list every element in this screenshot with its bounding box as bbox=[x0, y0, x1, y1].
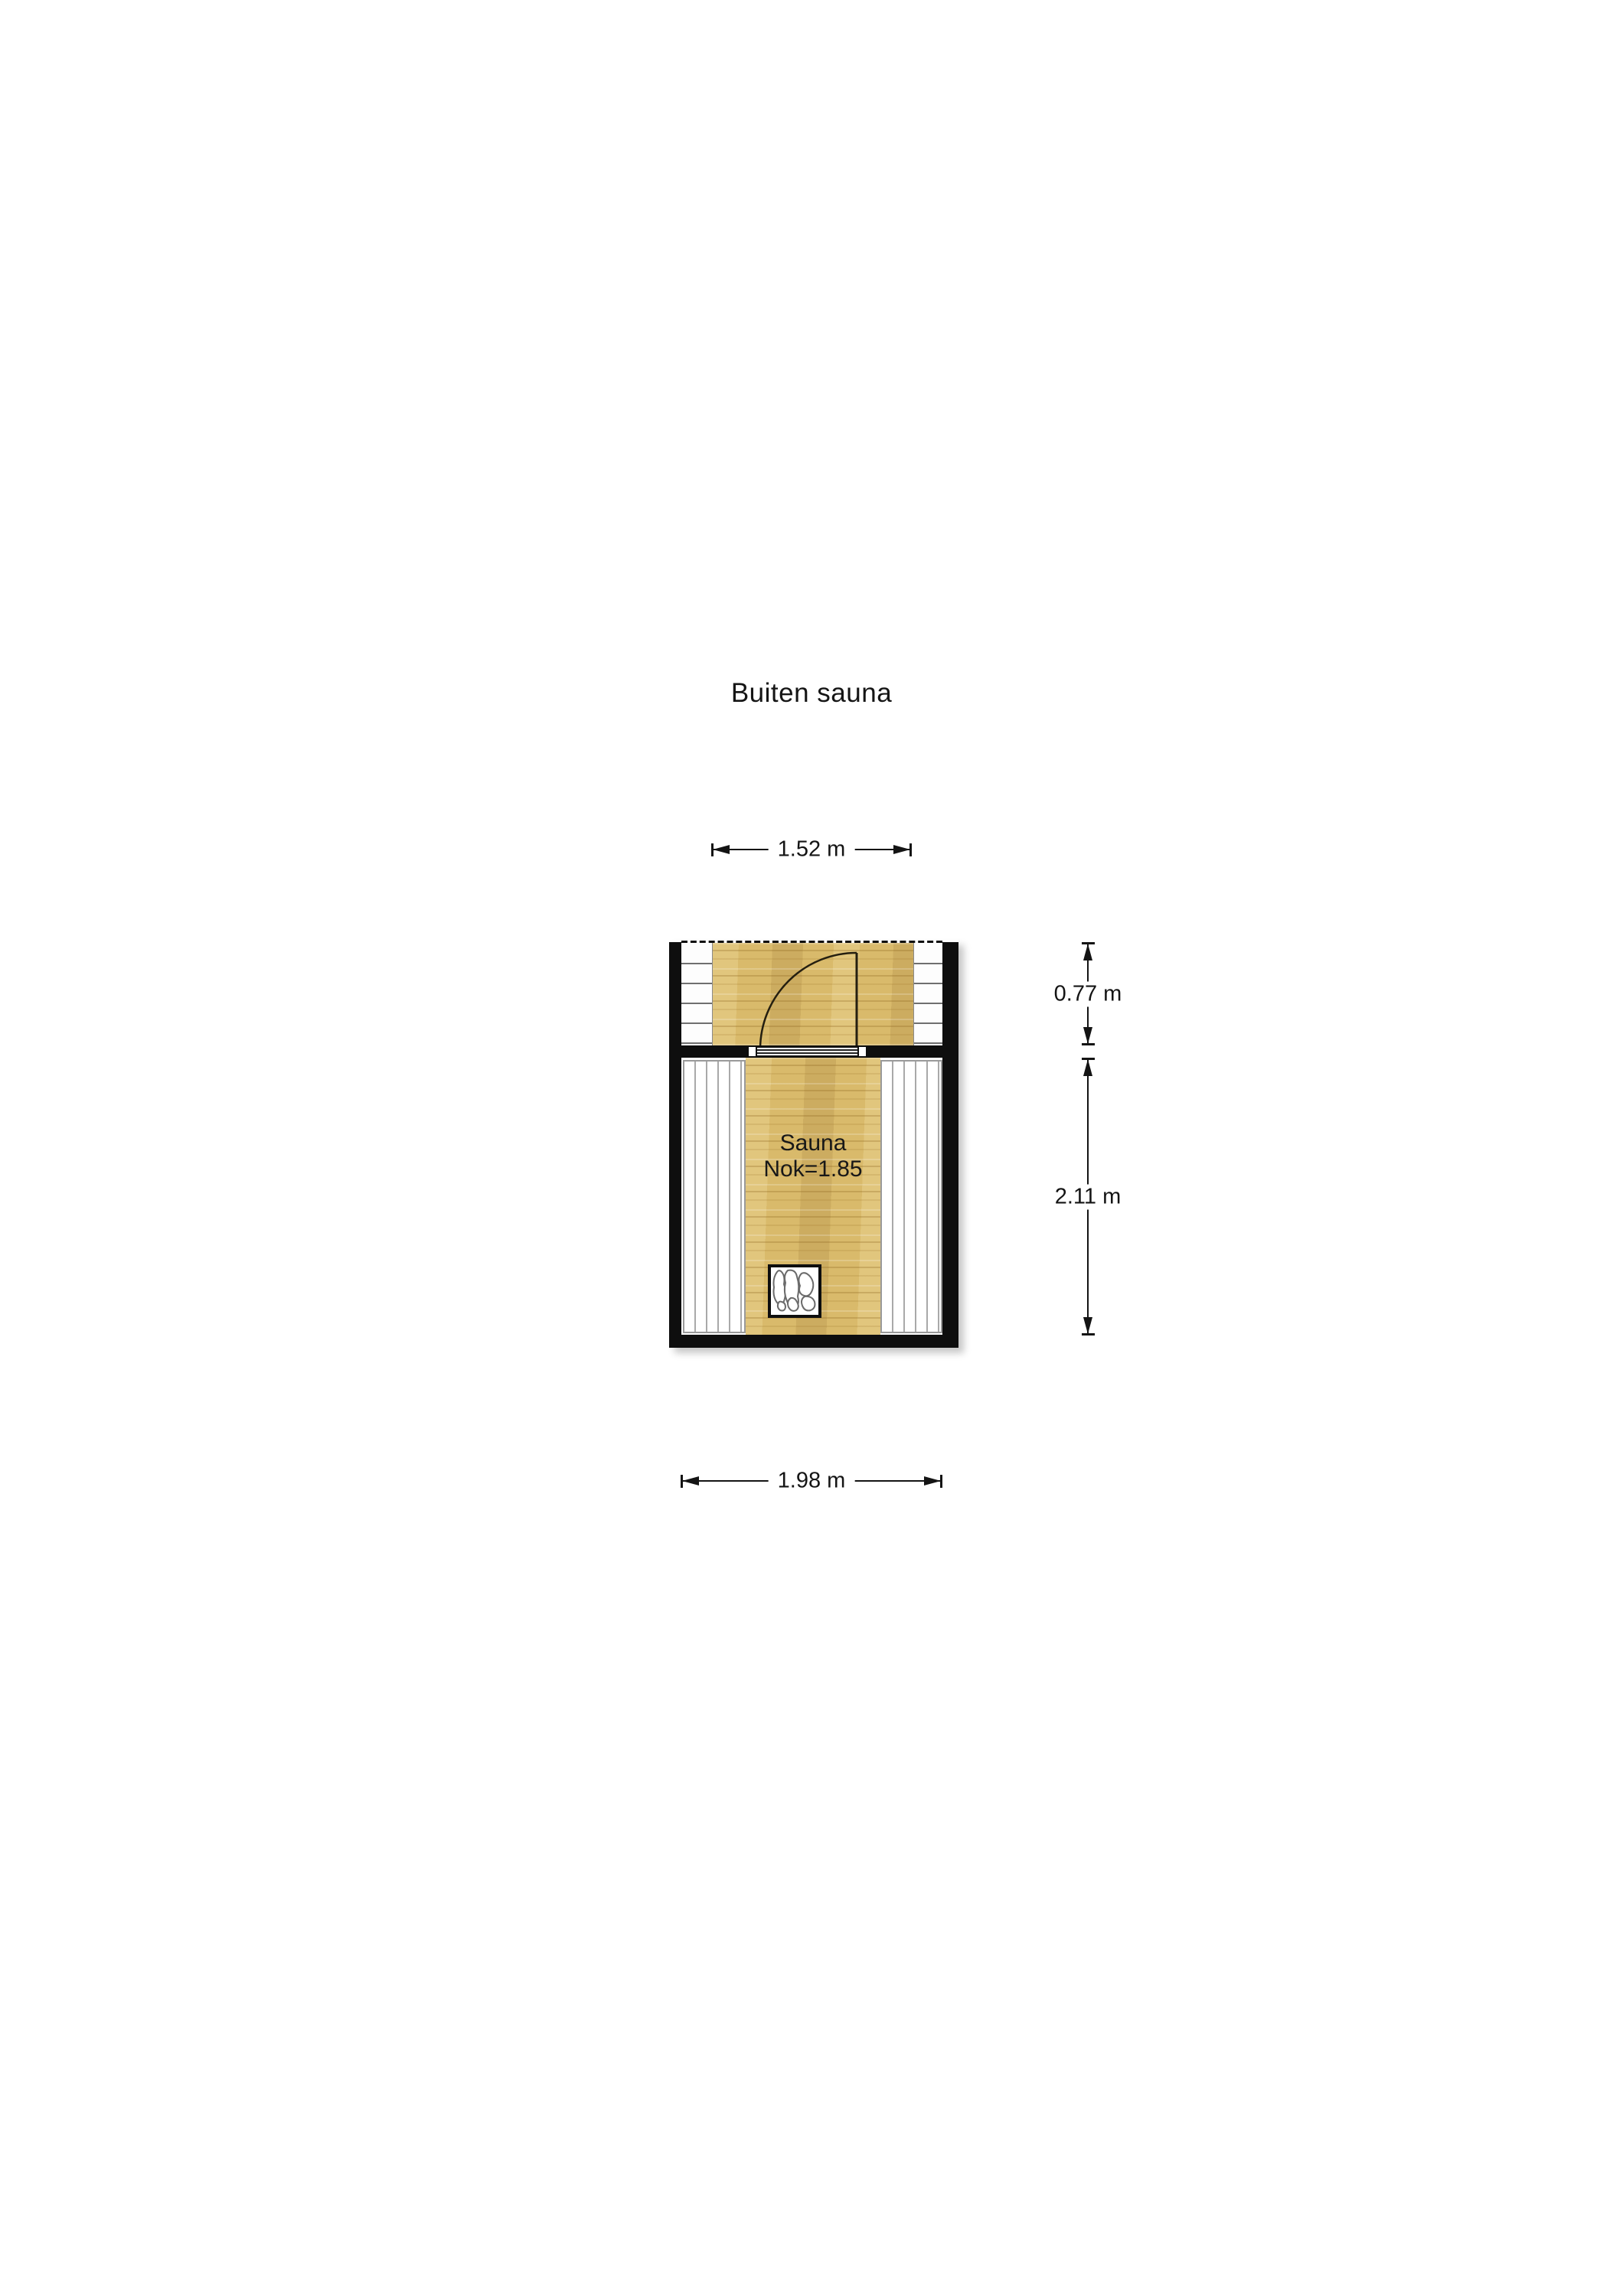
door-arc bbox=[760, 953, 857, 1049]
arrow-left-icon bbox=[682, 1476, 699, 1486]
wall-divider-right bbox=[867, 1045, 942, 1058]
arrow-left-icon bbox=[713, 845, 730, 854]
floor-plan-page: Buiten sauna 1.52 m 0.77 m 2.11 m 1.98 m bbox=[0, 0, 1623, 2296]
arrow-down-icon bbox=[1083, 1317, 1092, 1334]
wall-divider-left bbox=[681, 1045, 747, 1058]
dimension-label: 1.98 m bbox=[769, 1469, 855, 1494]
wall-bottom bbox=[669, 1335, 958, 1348]
dimension-label: 2.11 m bbox=[1046, 1184, 1131, 1209]
sill-line bbox=[757, 1052, 857, 1054]
arrow-right-icon bbox=[893, 845, 910, 854]
door-jamb-right bbox=[857, 1045, 867, 1058]
sauna-room: Sauna Nok=1.85 bbox=[681, 1058, 942, 1335]
room-label-block: Sauna Nok=1.85 bbox=[746, 1130, 880, 1182]
arrow-down-icon bbox=[1083, 1027, 1092, 1044]
door-jamb-left bbox=[747, 1045, 757, 1058]
wall-right bbox=[942, 942, 958, 1348]
door-sill bbox=[757, 1045, 857, 1058]
sauna-heater bbox=[768, 1264, 821, 1318]
arrow-right-icon bbox=[924, 1476, 941, 1486]
dimension-label: 1.52 m bbox=[769, 837, 855, 863]
door-swing-arc bbox=[681, 943, 942, 1049]
arrow-up-icon bbox=[1083, 944, 1092, 960]
left-bench bbox=[683, 1060, 746, 1333]
page-title: Buiten sauna bbox=[0, 678, 1623, 709]
room-name-label: Sauna bbox=[746, 1130, 880, 1156]
heater-stones-icon bbox=[771, 1267, 818, 1315]
sill-line bbox=[757, 1049, 857, 1051]
room-ridge-height-label: Nok=1.85 bbox=[746, 1156, 880, 1182]
wall-left bbox=[669, 942, 681, 1348]
porch-area bbox=[681, 943, 942, 1045]
right-bench bbox=[880, 1060, 942, 1333]
arrow-up-icon bbox=[1083, 1059, 1092, 1076]
floor-plan: Sauna Nok=1.85 bbox=[669, 940, 958, 1348]
dimension-label: 0.77 m bbox=[1045, 981, 1132, 1006]
